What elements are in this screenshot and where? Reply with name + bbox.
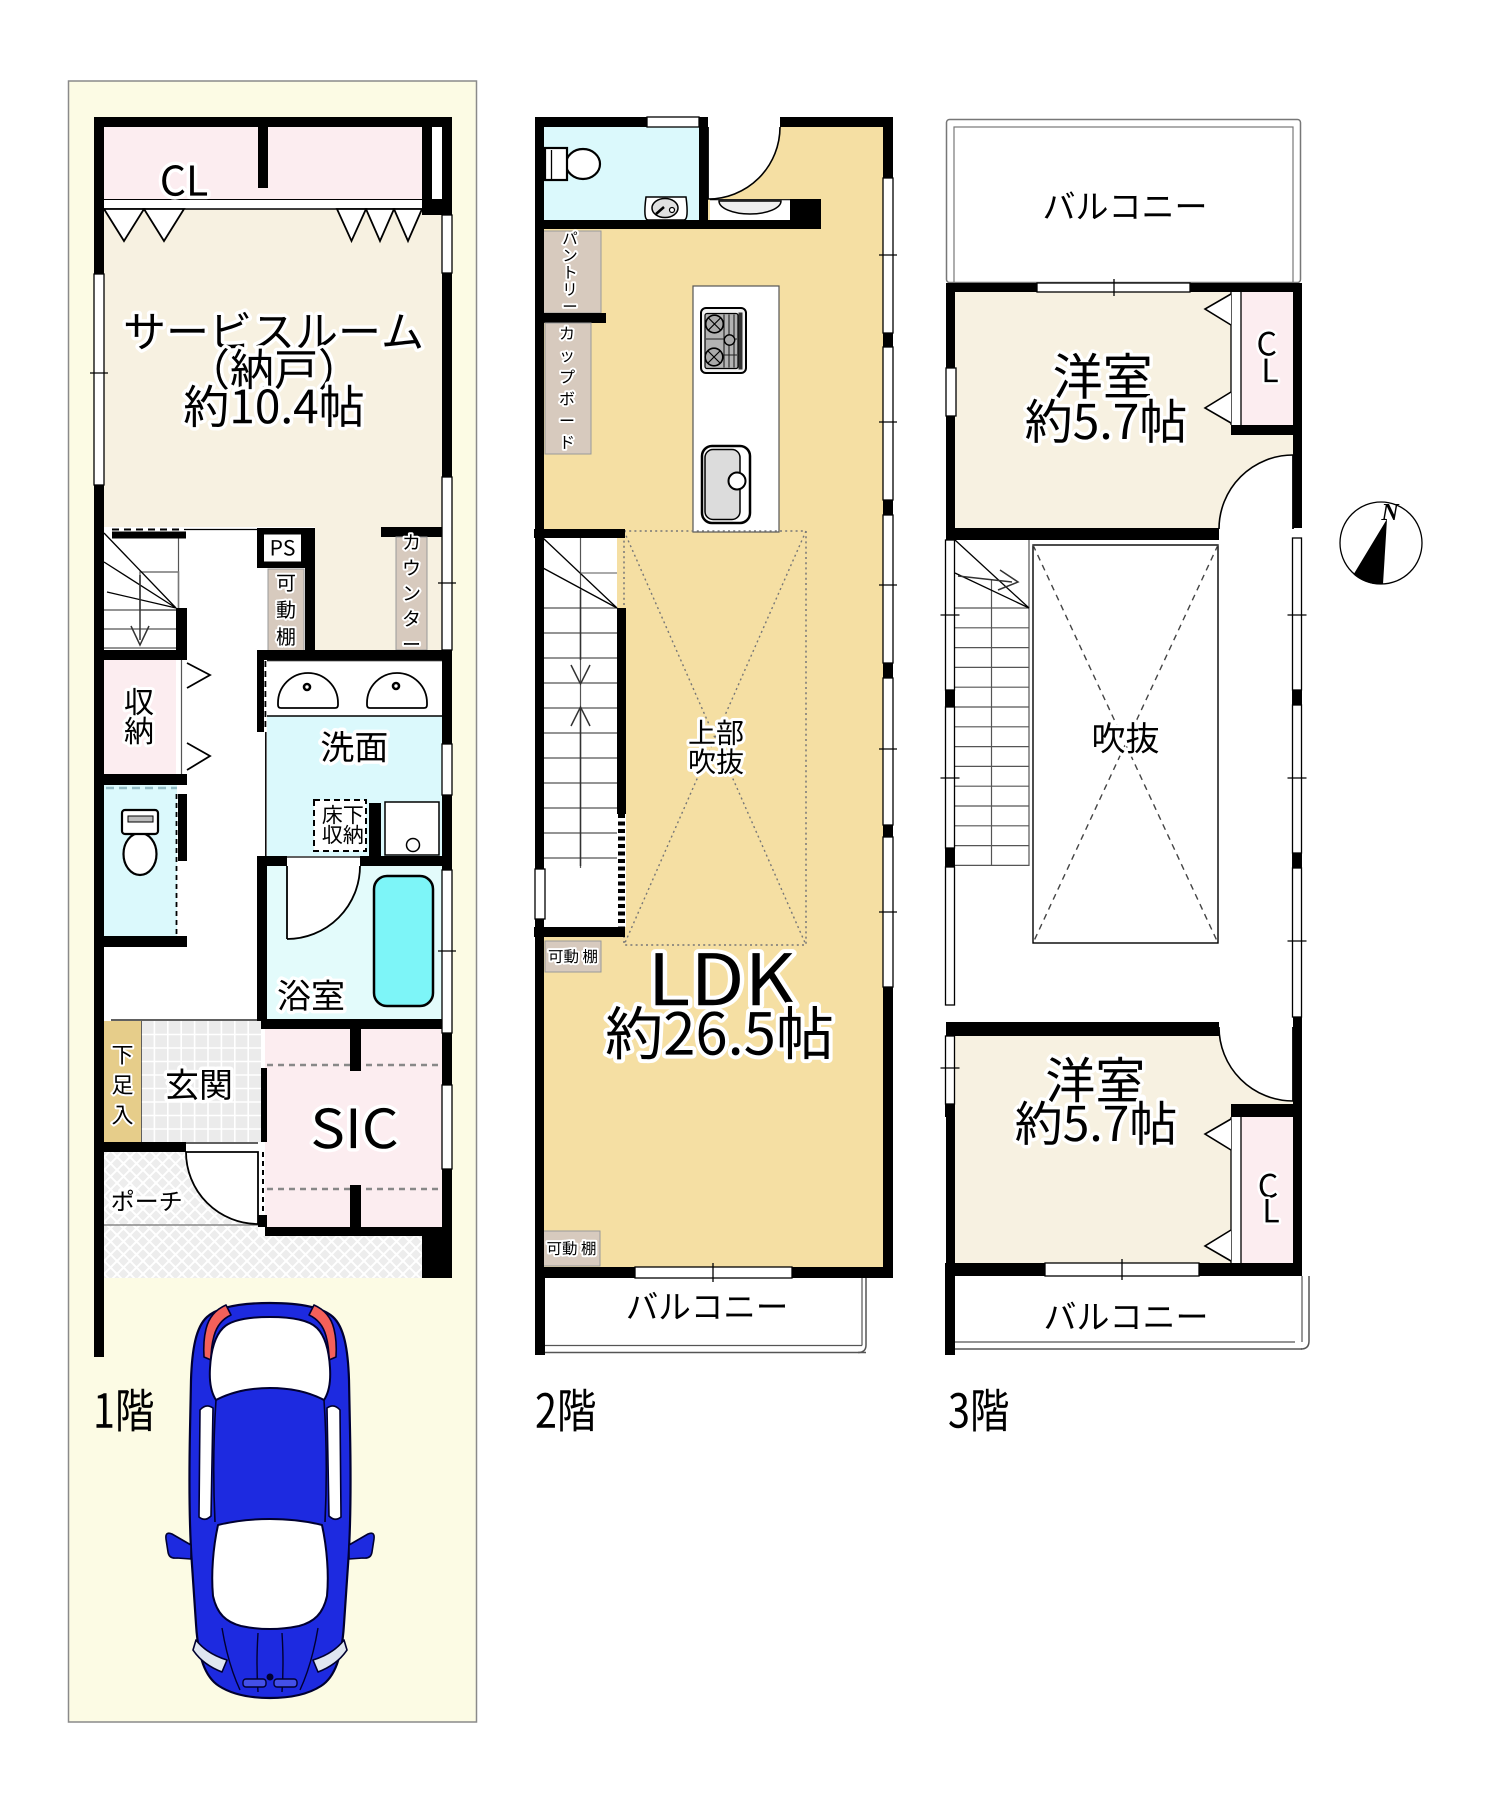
svg-text:N: N (1380, 500, 1400, 526)
